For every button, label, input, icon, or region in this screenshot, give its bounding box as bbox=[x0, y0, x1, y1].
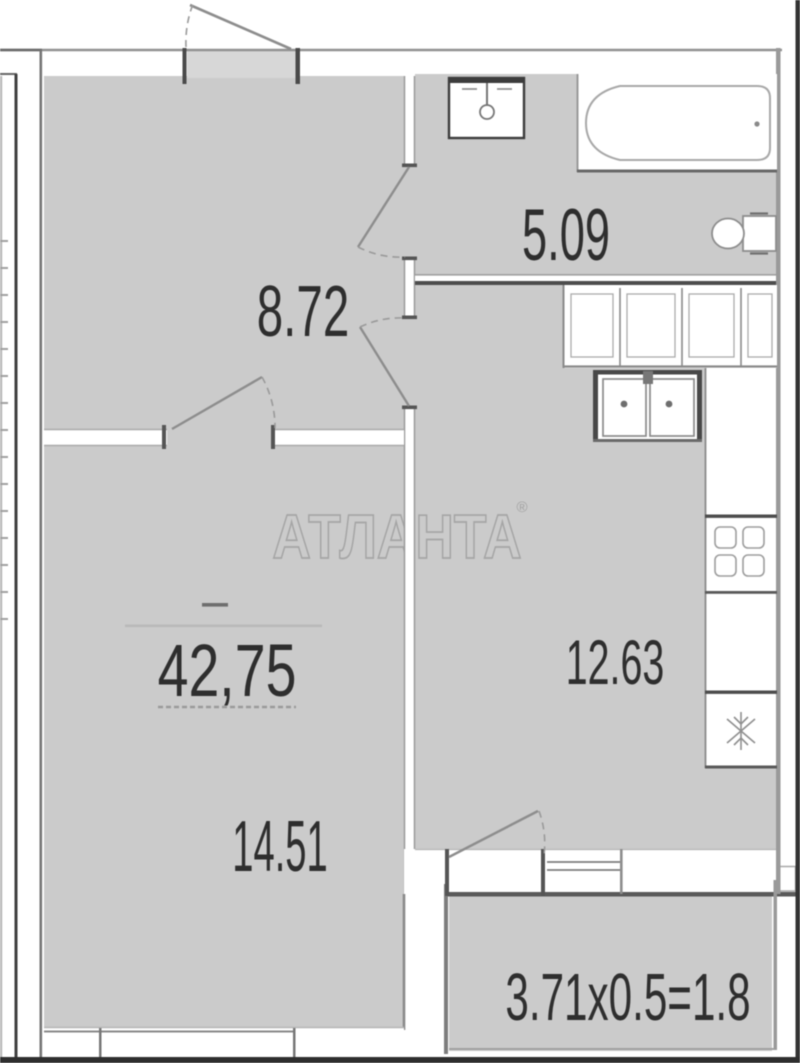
svg-text:5.09: 5.09 bbox=[522, 194, 610, 276]
svg-text:8.72: 8.72 bbox=[257, 271, 349, 351]
svg-text:АТЛАНТА: АТЛАНТА bbox=[272, 503, 521, 572]
svg-text:14.51: 14.51 bbox=[232, 807, 327, 887]
svg-text:®: ® bbox=[516, 499, 527, 516]
svg-text:3.71x0.5=1.8: 3.71x0.5=1.8 bbox=[505, 959, 750, 1034]
svg-text:42,75: 42,75 bbox=[158, 629, 297, 712]
svg-text:12.63: 12.63 bbox=[566, 628, 665, 699]
